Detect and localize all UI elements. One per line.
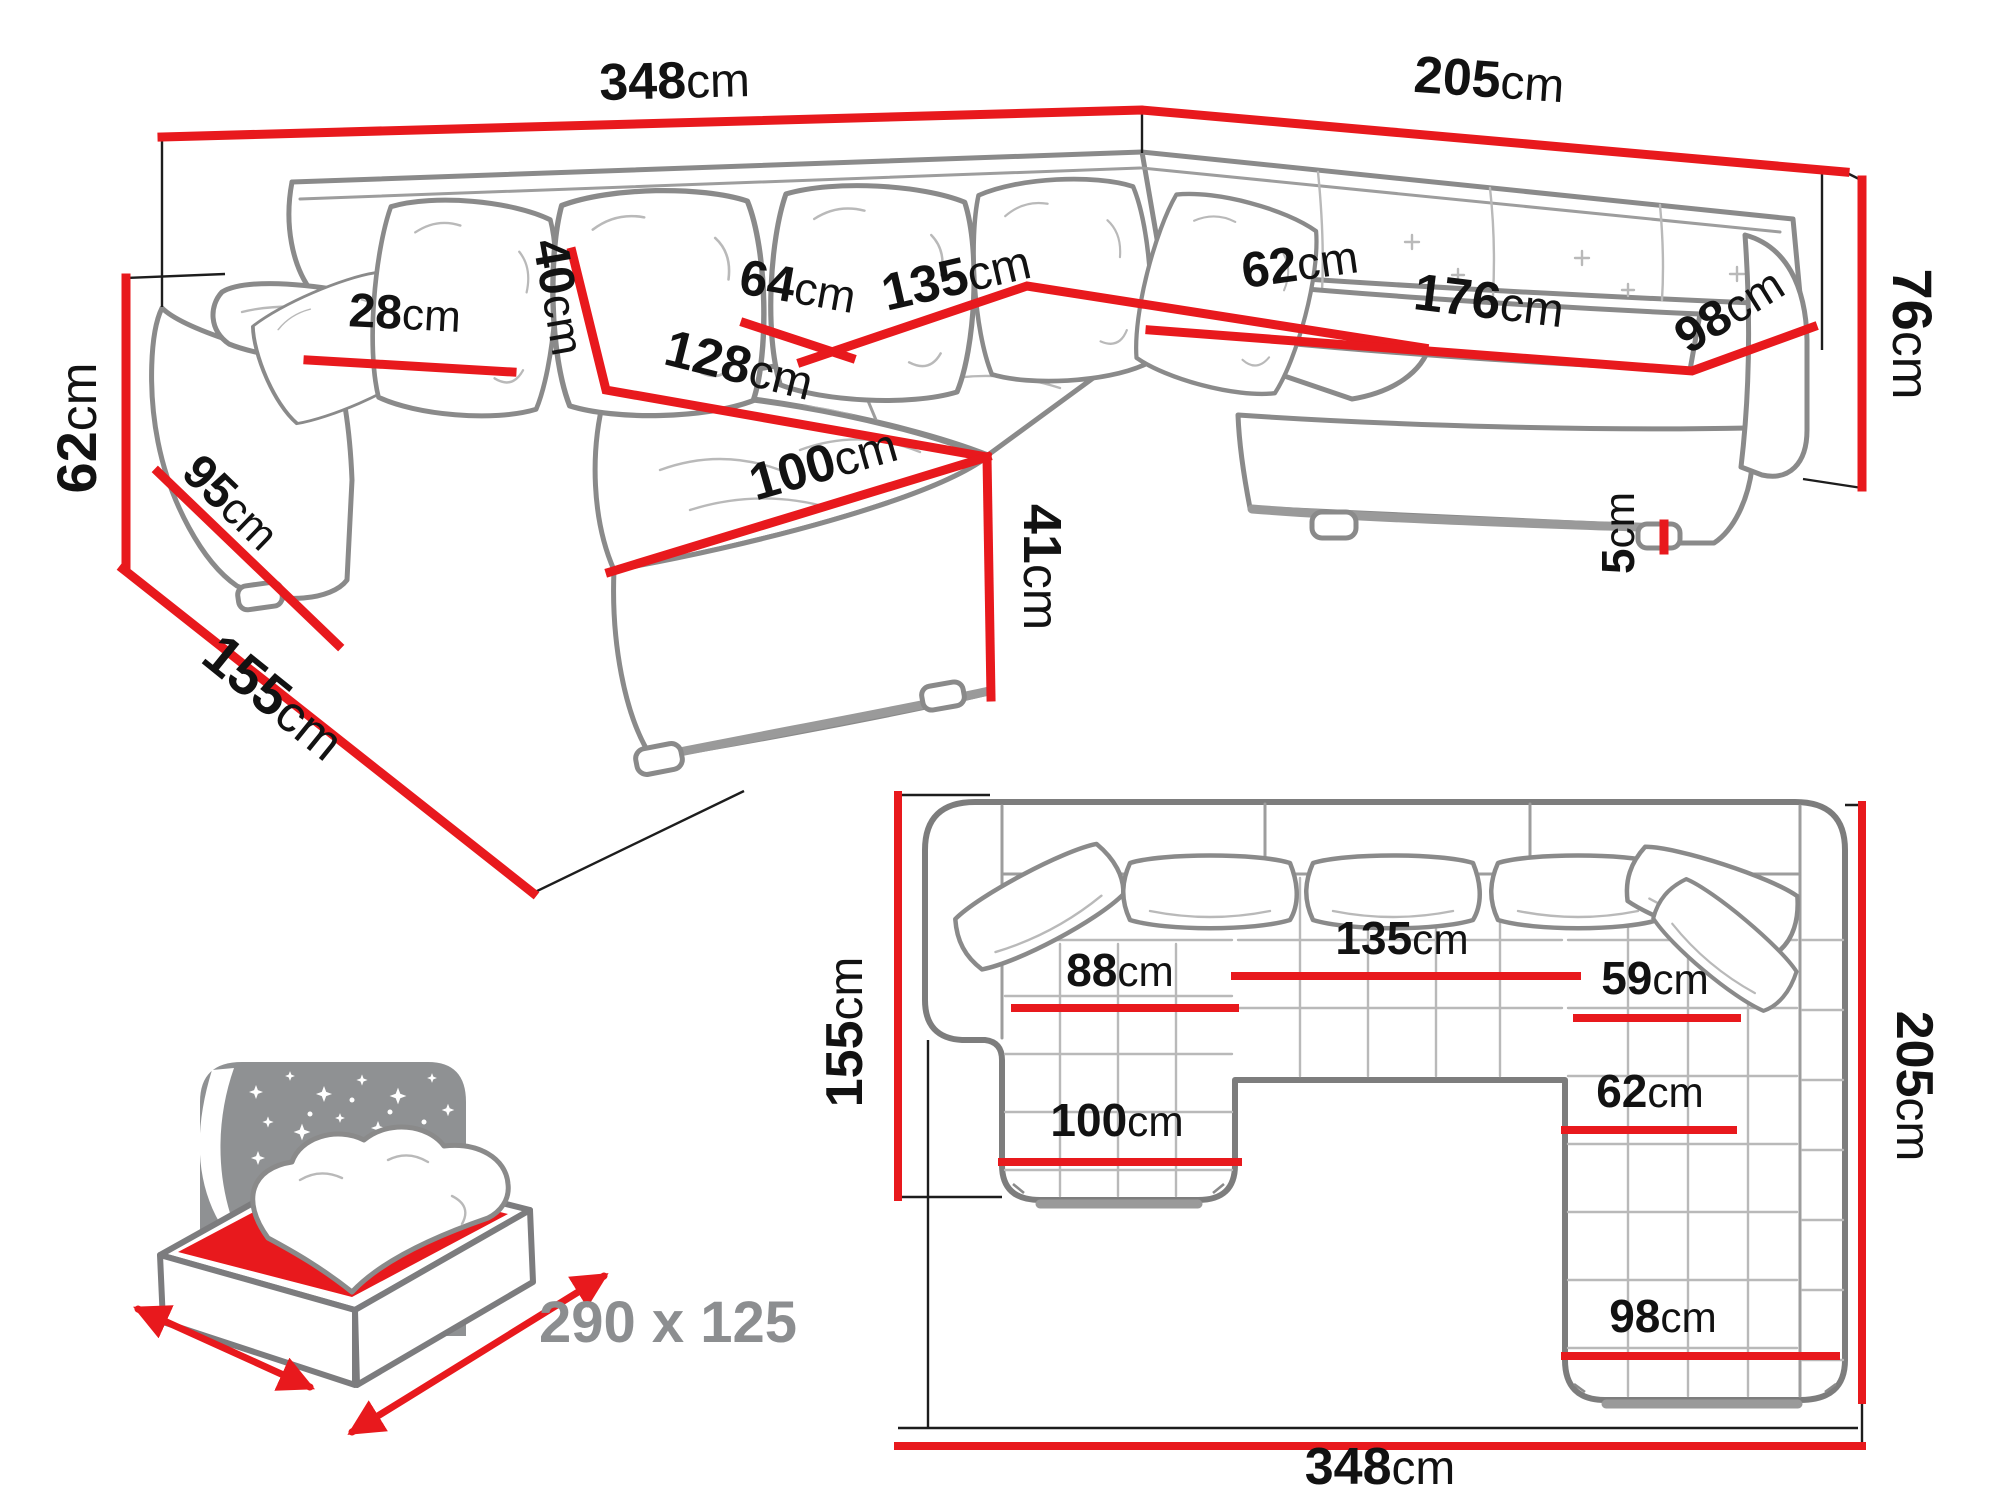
plan-label-205: 205cm (1885, 1011, 1943, 1162)
dim-label-76-backheight: 76cm (1881, 269, 1944, 400)
tick-76-bottom (1803, 479, 1862, 488)
plan-label-88: 88cm (1066, 944, 1174, 996)
plan-label-62: 62cm (1596, 1065, 1704, 1117)
plan-label-100: 100cm (1050, 1094, 1183, 1146)
plan-label-348: 348cm (1305, 1438, 1456, 1496)
top-view: 88cm 135cm 59cm 62cm 100cm 98cm 155cm 20… (816, 795, 1943, 1496)
sleeping-area-icon: 290 x 125 (0, 1062, 797, 1432)
tick-155-end (533, 791, 744, 893)
dim-label-28-armtop: 28cm (347, 284, 462, 343)
plan-label-135: 135cm (1335, 912, 1468, 964)
dim-label-5-leg: 5cm (1592, 492, 1644, 574)
tick-62-top (126, 274, 225, 278)
dim-label-62-height: 62cm (45, 363, 108, 494)
plan-label-155: 155cm (816, 957, 874, 1108)
dim-label-205-right: 205cm (1412, 46, 1566, 114)
diagram-canvas: 348cm 205cm 62cm 155cm 95cm 28cm 40cm 64… (0, 0, 2000, 1500)
dim-line-41 (987, 457, 991, 697)
plan-label-98: 98cm (1609, 1290, 1717, 1342)
dim-label-41-seatheight: 41cm (1012, 504, 1072, 630)
plan-label-59: 59cm (1601, 952, 1709, 1004)
dim-label-348-back: 348cm (599, 50, 751, 112)
sleeping-size-label: 290 x 125 (539, 1290, 797, 1355)
